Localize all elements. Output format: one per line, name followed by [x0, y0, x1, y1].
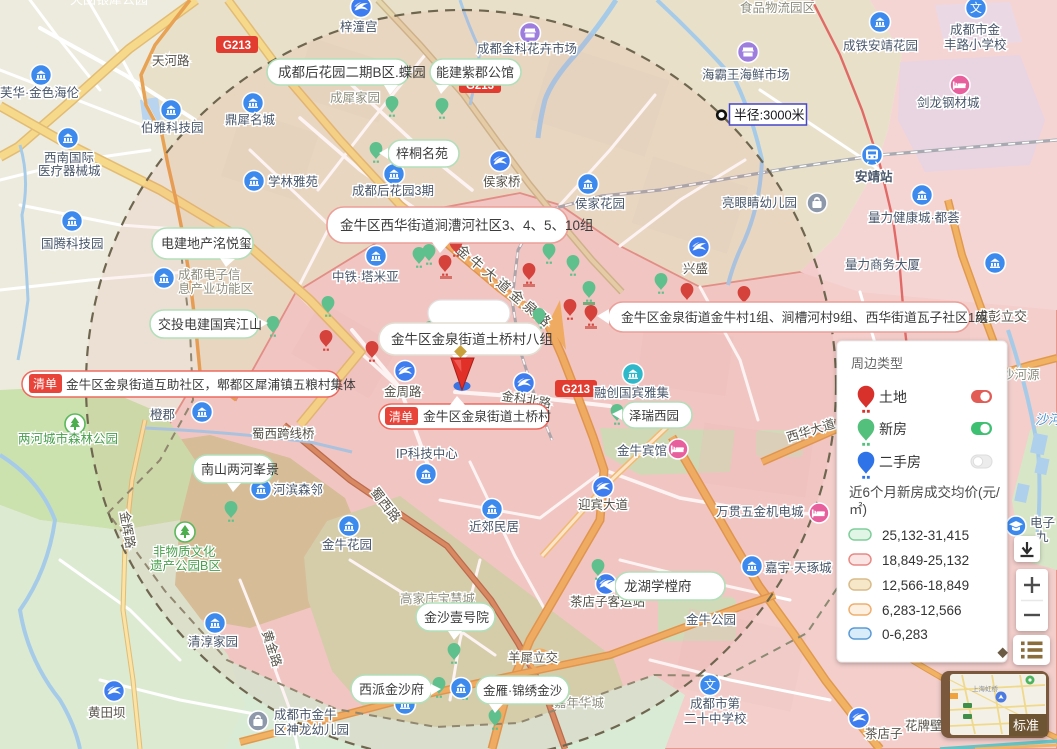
- svg-text:区神龙幼儿园: 区神龙幼儿园: [274, 723, 349, 737]
- svg-text:侯家桥: 侯家桥: [483, 174, 521, 189]
- svg-text:金牛公园: 金牛公园: [686, 612, 736, 627]
- svg-text:西派金沙府: 西派金沙府: [359, 682, 424, 697]
- svg-text:金牛区金泉街道互助社区，郫都区犀浦镇五粮村集体: 金牛区金泉街道互助社区，郫都区犀浦镇五粮村集体: [66, 377, 356, 392]
- svg-text:成都后花园二期B区.蝶园: 成都后花园二期B区.蝶园: [278, 65, 426, 80]
- svg-text:交投电建国宾江山: 交投电建国宾江山: [158, 317, 262, 332]
- svg-text:梓桐名苑: 梓桐名苑: [396, 146, 448, 161]
- svg-text:侯家花园: 侯家花园: [575, 196, 625, 211]
- svg-text:成都金科花卉市场: 成都金科花卉市场: [477, 41, 577, 56]
- svg-text:金牛花园: 金牛花园: [322, 537, 372, 552]
- svg-text:芙华·金色海伦: 芙华·金色海伦: [0, 85, 80, 100]
- svg-text:天河路: 天河路: [152, 53, 190, 68]
- svg-text:西南国际: 西南国际: [44, 150, 94, 165]
- svg-text:G213: G213: [562, 384, 590, 396]
- svg-text:泽瑞西园: 泽瑞西园: [629, 409, 679, 423]
- svg-text:兴盛: 兴盛: [683, 261, 708, 276]
- svg-text:量力商务大厦: 量力商务大厦: [845, 257, 920, 272]
- svg-text:清淳家园: 清淳家园: [188, 634, 238, 649]
- svg-text:标准: 标准: [1013, 718, 1039, 733]
- svg-text:剑龙钢材城: 剑龙钢材城: [917, 95, 980, 110]
- svg-text:近6个月新房成交均价(元/: 近6个月新房成交均价(元/: [849, 484, 1000, 500]
- svg-text:金牛宾馆: 金牛宾馆: [617, 443, 667, 458]
- svg-text:南山两河峯景: 南山两河峯景: [201, 462, 279, 477]
- svg-text:新房: 新房: [879, 421, 907, 437]
- svg-text:金雁·锦绣金沙: 金雁·锦绣金沙: [483, 683, 563, 698]
- svg-text:0-6,283: 0-6,283: [882, 627, 928, 642]
- svg-text:医疗器械城: 医疗器械城: [38, 163, 101, 178]
- svg-text:迎宾大道: 迎宾大道: [578, 497, 629, 512]
- svg-text:息产业功能区: 息产业功能区: [178, 281, 253, 296]
- svg-text:成都后花园3期: 成都后花园3期: [352, 183, 434, 198]
- svg-text:龙湖学樘府: 龙湖学樘府: [624, 579, 692, 594]
- svg-text:二十中学校: 二十中学校: [684, 711, 747, 726]
- svg-text:㎡): ㎡): [849, 502, 867, 517]
- svg-text:金牛区西华街道涧漕河社区3、4、5、10组: 金牛区西华街道涧漕河社区3、4、5、10组: [340, 218, 594, 233]
- svg-text:电子: 电子: [1030, 516, 1055, 530]
- svg-text:清单: 清单: [389, 410, 413, 424]
- svg-text:金牛区金泉街道土桥村: 金牛区金泉街道土桥村: [423, 409, 551, 424]
- svg-text:万贯五金机电城: 万贯五金机电城: [716, 504, 804, 519]
- svg-text:18,849-25,132: 18,849-25,132: [882, 553, 969, 568]
- svg-text:金沙壹号院: 金沙壹号院: [424, 610, 489, 625]
- svg-text:鼎犀名城: 鼎犀名城: [225, 112, 276, 127]
- svg-text:能建紫郡公馆: 能建紫郡公馆: [436, 65, 514, 80]
- svg-text:成铁安靖花园: 成铁安靖花园: [843, 38, 918, 53]
- svg-text:IP科技中心: IP科技中心: [396, 446, 458, 461]
- svg-text:沙河: 沙河: [1035, 412, 1057, 427]
- svg-text:天回银犀公园: 天回银犀公园: [70, 0, 148, 7]
- svg-text:两河城市森林公园: 两河城市森林公园: [18, 431, 118, 446]
- svg-text:亮眼睛幼儿园: 亮眼睛幼儿园: [722, 195, 797, 210]
- svg-text:土地: 土地: [879, 389, 907, 405]
- svg-text:食品物流园区: 食品物流园区: [740, 0, 815, 15]
- svg-text:12,566-18,849: 12,566-18,849: [882, 578, 969, 593]
- svg-text:学林雅苑: 学林雅苑: [268, 174, 319, 189]
- svg-text:橙郡: 橙郡: [150, 407, 175, 422]
- svg-text:海霸王海鲜市场: 海霸王海鲜市场: [702, 67, 790, 82]
- svg-text:金周路: 金周路: [384, 384, 422, 399]
- svg-text:成都市金牛: 成都市金牛: [274, 707, 337, 722]
- svg-text:成都市金: 成都市金: [950, 22, 1001, 37]
- svg-text:周边类型: 周边类型: [851, 356, 903, 371]
- svg-text:近郊民居: 近郊民居: [469, 519, 519, 534]
- svg-text:量力健康城·都荟: 量力健康城·都荟: [868, 210, 960, 225]
- svg-text:遗产公园B区: 遗产公园B区: [150, 559, 221, 573]
- svg-text:蜀西跨线桥: 蜀西跨线桥: [252, 427, 315, 441]
- svg-text:融创国宾雅集: 融创国宾雅集: [594, 385, 670, 400]
- svg-text:嘉宇·天琢城: 嘉宇·天琢城: [765, 560, 832, 575]
- svg-text:成都电子信: 成都电子信: [178, 268, 241, 282]
- svg-text:河滨森邻: 河滨森邻: [273, 482, 323, 497]
- svg-text:金牛区金泉街道土桥村八组: 金牛区金泉街道土桥村八组: [391, 331, 553, 347]
- svg-text:茶店子: 茶店子: [865, 726, 903, 741]
- svg-text:25,132-31,415: 25,132-31,415: [882, 528, 969, 543]
- svg-text:成都市第: 成都市第: [690, 696, 740, 711]
- svg-text:沙河源: 沙河源: [1002, 368, 1040, 382]
- svg-text:黄田坝: 黄田坝: [88, 706, 126, 720]
- svg-text:中铁·塔米亚: 中铁·塔米亚: [332, 269, 399, 284]
- svg-text:半径:3000米: 半径:3000米: [734, 108, 805, 123]
- svg-text:国腾科技园: 国腾科技园: [41, 236, 104, 251]
- svg-text:二手房: 二手房: [879, 454, 921, 470]
- svg-text:伯雅科技园: 伯雅科技园: [141, 120, 204, 135]
- svg-text:G213: G213: [223, 40, 251, 52]
- svg-text:花牌壁: 花牌壁: [905, 718, 943, 733]
- svg-text:羊犀立交: 羊犀立交: [508, 650, 558, 665]
- svg-text:安靖站: 安靖站: [855, 169, 893, 184]
- svg-text:丰路小学校: 丰路小学校: [944, 37, 1007, 52]
- svg-text:金牛区金泉街道金牛村1组、涧槽河村9组、西华街道瓦子社区1组: 金牛区金泉街道金牛村1组、涧槽河村9组、西华街道瓦子社区1组: [621, 310, 988, 325]
- svg-text:成犀家园: 成犀家园: [330, 90, 380, 105]
- svg-text:清单: 清单: [33, 377, 57, 391]
- svg-text:6,283-12,566: 6,283-12,566: [882, 603, 962, 618]
- svg-text:梓潼宫: 梓潼宫: [340, 19, 378, 34]
- svg-text:电建地产洺悦玺: 电建地产洺悦玺: [161, 236, 252, 251]
- svg-text:非物质文化: 非物质文化: [153, 544, 216, 559]
- svg-text:上海虹桥: 上海虹桥: [972, 684, 999, 693]
